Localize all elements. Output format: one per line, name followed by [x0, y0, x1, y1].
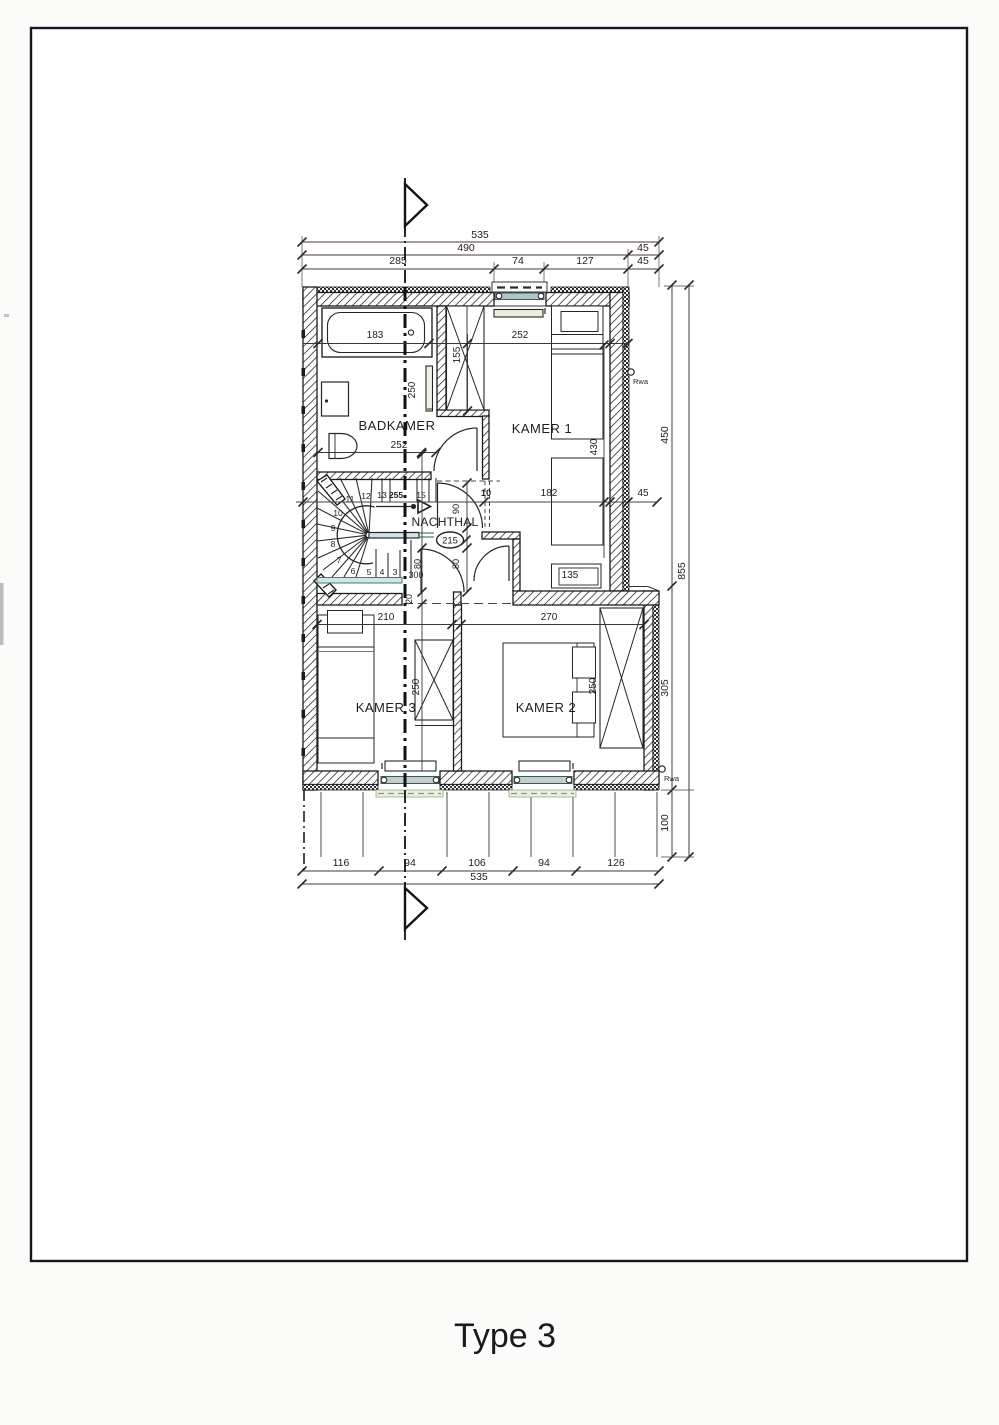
svg-text:15: 15	[416, 490, 426, 500]
svg-text:90: 90	[451, 504, 461, 514]
svg-text:183: 183	[367, 330, 384, 341]
svg-text:270: 270	[541, 612, 558, 623]
svg-text:305: 305	[659, 679, 671, 697]
svg-text:6: 6	[351, 566, 356, 576]
svg-text:10: 10	[481, 488, 491, 498]
svg-text:250: 250	[588, 677, 599, 694]
svg-text:106: 106	[468, 857, 486, 869]
svg-text:4: 4	[380, 567, 385, 577]
svg-text:Rwa: Rwa	[633, 377, 649, 386]
svg-text:45: 45	[637, 242, 649, 254]
svg-text:535: 535	[471, 229, 489, 241]
svg-text:116: 116	[333, 857, 350, 869]
svg-text:94: 94	[538, 857, 550, 869]
svg-text:155: 155	[452, 346, 463, 363]
svg-text:7: 7	[337, 555, 342, 565]
svg-text:490: 490	[457, 242, 475, 254]
svg-text:94: 94	[404, 857, 416, 869]
svg-text:8: 8	[331, 539, 336, 549]
svg-text:9: 9	[331, 523, 336, 533]
svg-text:255: 255	[389, 490, 404, 500]
svg-text:80: 80	[413, 559, 423, 569]
svg-text:126: 126	[607, 857, 625, 869]
svg-text:KAMER 3: KAMER 3	[356, 700, 417, 715]
svg-text:215: 215	[442, 536, 458, 547]
svg-text:45: 45	[637, 488, 649, 499]
svg-text:135: 135	[562, 570, 579, 581]
svg-text:74: 74	[512, 255, 524, 267]
svg-text:250: 250	[411, 678, 422, 695]
svg-text:13: 13	[377, 490, 387, 500]
svg-text:535: 535	[470, 871, 488, 883]
svg-text:BADKAMER: BADKAMER	[359, 418, 436, 433]
svg-text:80: 80	[451, 559, 461, 569]
svg-text:45: 45	[637, 255, 649, 267]
svg-text:100: 100	[659, 814, 671, 832]
svg-text:252: 252	[391, 440, 408, 451]
svg-text:10: 10	[333, 508, 343, 518]
svg-text:210: 210	[378, 612, 395, 623]
svg-text:KAMER 1: KAMER 1	[512, 421, 573, 436]
svg-text:3: 3	[393, 567, 398, 577]
svg-text:5: 5	[367, 567, 372, 577]
svg-text:KAMER 2: KAMER 2	[516, 700, 577, 715]
svg-text:450: 450	[659, 426, 671, 444]
svg-text:20: 20	[404, 594, 414, 604]
svg-text:NACHTHAL: NACHTHAL	[411, 515, 478, 529]
svg-text:12: 12	[361, 491, 371, 501]
svg-text:250: 250	[407, 381, 418, 398]
svg-text:252: 252	[512, 330, 529, 341]
svg-text:Type 3: Type 3	[454, 1317, 556, 1355]
svg-text:Rwa: Rwa	[664, 774, 680, 783]
svg-text:430: 430	[589, 438, 600, 455]
svg-text:127: 127	[576, 255, 594, 267]
svg-text:300: 300	[409, 570, 424, 580]
svg-text:182: 182	[541, 488, 558, 499]
svg-text:855: 855	[676, 562, 688, 580]
